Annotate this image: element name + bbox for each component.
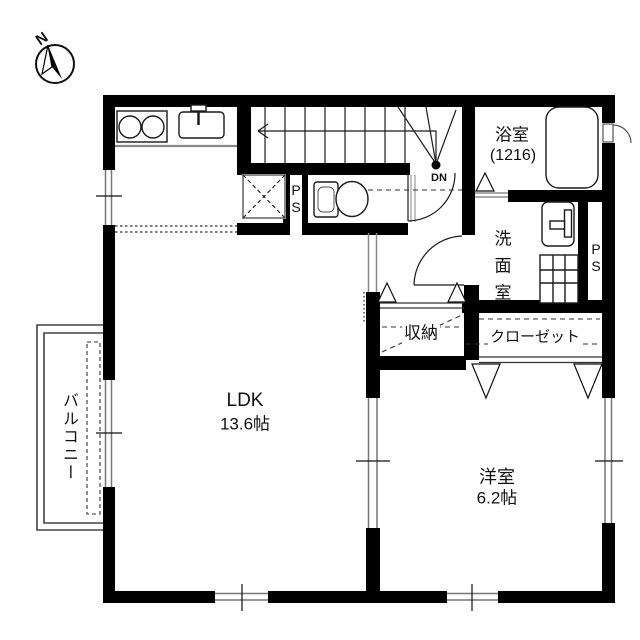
vanity-sink-icon <box>542 202 574 246</box>
room-size-bathroom: (1216) <box>490 147 536 165</box>
bathroom-vent-window-icon <box>602 123 631 143</box>
closet-folding-doors-icon <box>472 357 602 398</box>
kitchen-sink-icon <box>179 105 224 138</box>
toilet-doorway <box>411 175 415 222</box>
western-room-window-icon <box>595 398 623 523</box>
kitchen-window-icon <box>96 170 122 225</box>
ldk-western-room-sliding-door-icon <box>356 398 390 528</box>
western-room-bottom-window-icon <box>447 584 498 611</box>
staircase <box>258 107 456 170</box>
toilet-icon <box>314 182 368 218</box>
compass-icon <box>36 45 74 83</box>
pipe-space-hall-label: PS <box>290 182 303 216</box>
duct-space-icon <box>243 175 285 218</box>
floor-plan-drawing <box>0 0 640 640</box>
floor-plan: N DN LDK 13.6帖 洋室 6.2帖 浴室 (1216) 洗面室 収納 … <box>0 0 640 640</box>
room-label-bathroom: 浴室 <box>495 121 529 146</box>
room-area-ldk: 13.6帖 <box>220 410 270 435</box>
bathtub-icon <box>546 107 598 188</box>
ldk-hall-opening <box>369 233 377 292</box>
stairs-dn-label: DN <box>431 172 447 184</box>
washroom-door-icon <box>414 236 464 285</box>
room-label-washroom: 洗面室 <box>489 230 514 311</box>
storage-folding-doors-icon <box>378 283 466 308</box>
walls <box>103 95 615 603</box>
ldk-bottom-window-icon <box>215 584 268 611</box>
room-label-balcony: バルコニー <box>56 392 80 482</box>
bathroom-folding-door-icon <box>475 173 508 197</box>
washing-machine-pan-icon <box>540 255 578 303</box>
stove-icon <box>117 111 167 142</box>
room-label-storage: 収納 <box>402 319 440 344</box>
pipe-space-washroom-label: PS <box>590 241 603 275</box>
room-area-western-room: 6.2帖 <box>477 484 518 509</box>
room-label-closet: クローゼット <box>488 326 582 347</box>
